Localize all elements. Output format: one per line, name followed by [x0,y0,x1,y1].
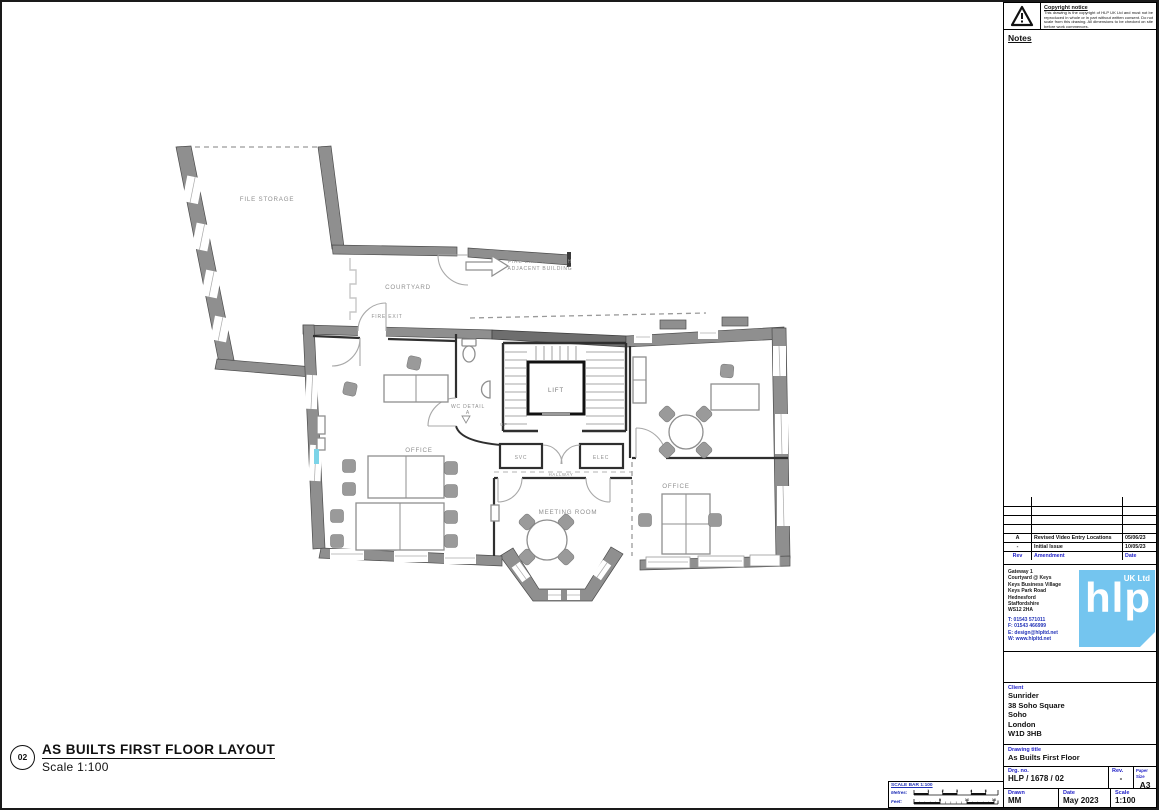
scale-bar-metres-ruler: 1 2 3 4 5 [913,788,999,797]
warning-triangle-icon [1010,5,1034,27]
drawing-title-value: As Builts First Floor [1008,753,1152,762]
svg-text:10: 10 [965,797,970,802]
basin-icon [482,381,491,398]
scale-bar-metres-label: Metres: [891,790,913,795]
notes-label: Notes [1008,33,1152,43]
rev-value: - [1112,774,1130,783]
bottom-left-windows [330,549,476,564]
rev-row-initial-amendment: Initial Issue [1032,542,1123,551]
company-logo: UK Ltd hlp [1079,570,1155,647]
drawing-number-row: Drg. no. HLP / 1678 / 02 Rev. - Paper Si… [1003,767,1157,789]
drawing-title-box: Drawing title As Builts First Floor [1003,745,1157,767]
client-line: London [1008,720,1152,730]
scale-bar-feet-ruler: 5 10 15 [913,797,999,806]
label-wc-detail-2: A [466,410,470,416]
company-address: Gateway 1 Courtyard @ Keys Keys Business… [1008,569,1061,642]
scale-bar: SCALE BAR 1:100 Metres: 1 2 3 4 5 [888,781,1004,808]
room-label-file-storage: FILE STORAGE [240,196,295,203]
logo-text: hlp [1085,578,1151,618]
label-elec: ELEC [593,455,609,461]
drawn-date-scale-row: Drawn MM Date May 2023 Scale 1:100 [1003,789,1157,808]
client-line: 38 Soho Square [1008,701,1152,711]
svg-text:4: 4 [970,788,973,793]
company-box: Gateway 1 Courtyard @ Keys Keys Business… [1003,565,1157,652]
plan-title-block: 02 AS BUILTS FIRST FLOOR LAYOUT Scale 1:… [10,742,275,774]
svg-text:5: 5 [939,797,942,802]
svg-text:1: 1 [927,788,930,793]
date-value: May 2023 [1063,796,1106,805]
wc-detail-marker-icon [462,416,470,423]
svg-text:3: 3 [956,788,959,793]
scale-value: 1:100 [1115,796,1152,805]
plan-ref-circle: 02 [10,745,35,770]
drg-no-value: HLP / 1678 / 02 [1008,774,1104,783]
label-fire-exit-through-2: ADJACENT BUILDING [508,266,573,272]
room-label-office-left: OFFICE [405,447,433,454]
revision-table: A Revised Video Entry Locations 05/06/23… [1003,497,1157,565]
rev-header-amendment: Amendment [1032,551,1123,560]
client-box: Client Sunrider 38 Soho Square Soho Lond… [1003,683,1157,745]
highlighted-radiator [314,449,319,464]
courtyard-steps [350,258,356,320]
rev-row-initial-date: 10/05/23 [1123,542,1156,551]
rev-row-initial-rev: - [1004,542,1032,551]
label-lift: LIFT [548,387,564,394]
drawing-sheet: FILE STORAGE COURTYARD FIRE EXIT FIRE EX… [0,0,1159,810]
copyright-body: This drawing is the copyright of HLP UK … [1044,11,1153,29]
paper-size-label: Paper Size [1136,768,1154,780]
scale-bar-feet-label: Feet: [891,799,913,804]
toilet-icon [462,339,476,362]
radiator [491,505,499,521]
room-label-meeting-room: MEETING ROOM [539,509,598,516]
rev-row-a-date: 05/06/23 [1123,533,1156,542]
label-up: UP [500,422,507,427]
rev-row-a-amendment: Revised Video Entry Locations [1032,533,1123,542]
rev-header-date: Date [1123,551,1156,560]
client-line: W1D 3HB [1008,729,1152,739]
contact-line: W: www.hlpltd.net [1008,636,1061,642]
svg-text:2: 2 [942,788,945,793]
bottom-right-windows [646,555,780,568]
notes-box: Notes [1003,29,1157,498]
room-label-courtyard: COURTYARD [385,284,431,291]
room-label-office-right: OFFICE [662,483,690,490]
label-fire-exit-through-1: FIRE EXIT THROUGH [508,259,572,265]
label-fire-exit: FIRE EXIT [371,314,402,320]
plan-scale: Scale 1:100 [42,760,275,774]
rev-row-a-rev: A [1004,533,1032,542]
svg-text:5: 5 [985,788,988,793]
copyright-box: Copyright notice This drawing is the cop… [1003,2,1157,30]
plan-title: AS BUILTS FIRST FLOOR LAYOUT [42,742,275,759]
spacer-box [1003,652,1157,683]
label-svc: SVC [515,455,528,461]
drawn-value: MM [1008,796,1054,805]
floor-plan-svg: FILE STORAGE COURTYARD FIRE EXIT FIRE EX… [0,0,1003,810]
label-hallway: HALLWAY [549,472,574,477]
svg-text:15: 15 [992,797,997,802]
client-line: Sunrider [1008,691,1152,701]
round-table [669,415,703,449]
logo-fold-corner [1140,632,1155,647]
client-line: Soho [1008,710,1152,720]
rev-header-rev: Rev [1004,551,1032,560]
